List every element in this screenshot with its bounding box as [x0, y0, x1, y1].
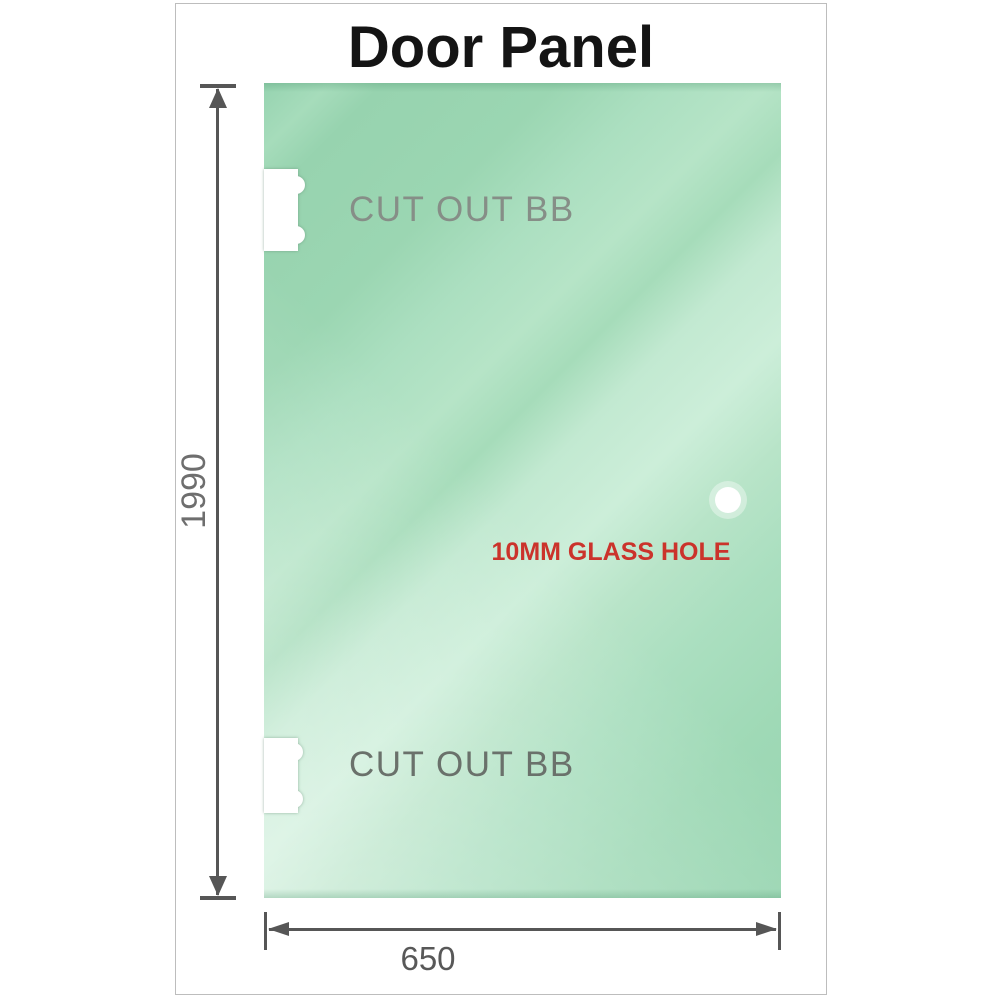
- glass-hole-label: 10MM GLASS HOLE: [451, 538, 771, 567]
- glass-hole: [715, 487, 741, 513]
- hinge-cutout-top: [264, 169, 306, 251]
- cutout-bottom-label: CUT OUT BB: [349, 744, 575, 786]
- door-glass-panel: CUT OUT BB CUT OUT BB 10MM GLASS HOLE: [264, 83, 781, 898]
- arrow-left-icon: [268, 922, 289, 936]
- dimension-line: [269, 928, 776, 931]
- dimension-line: [216, 89, 219, 895]
- cutout-top-label: CUT OUT BB: [349, 189, 575, 231]
- dimension-end-tick: [264, 912, 267, 950]
- hinge-cutout-bottom: [264, 738, 306, 813]
- width-dimension-label: 650: [348, 940, 508, 978]
- arrow-up-icon: [209, 88, 227, 108]
- arrow-right-icon: [756, 922, 777, 936]
- drawing-card: Door Panel CUT OUT BB CUT OUT BB 10MM GL…: [175, 3, 827, 995]
- hinge-cutout-lobe: [287, 226, 305, 244]
- arrow-down-icon: [209, 876, 227, 896]
- dimension-end-tick: [778, 912, 781, 950]
- dimension-end-tick: [200, 896, 236, 900]
- hinge-cutout-lobe: [287, 176, 305, 194]
- width-dimension: [264, 912, 781, 950]
- diagram-title: Door Panel: [176, 14, 826, 81]
- height-dimension-label: 1990: [176, 421, 212, 561]
- hinge-cutout-lobe: [285, 790, 303, 808]
- hinge-cutout-lobe: [285, 743, 303, 761]
